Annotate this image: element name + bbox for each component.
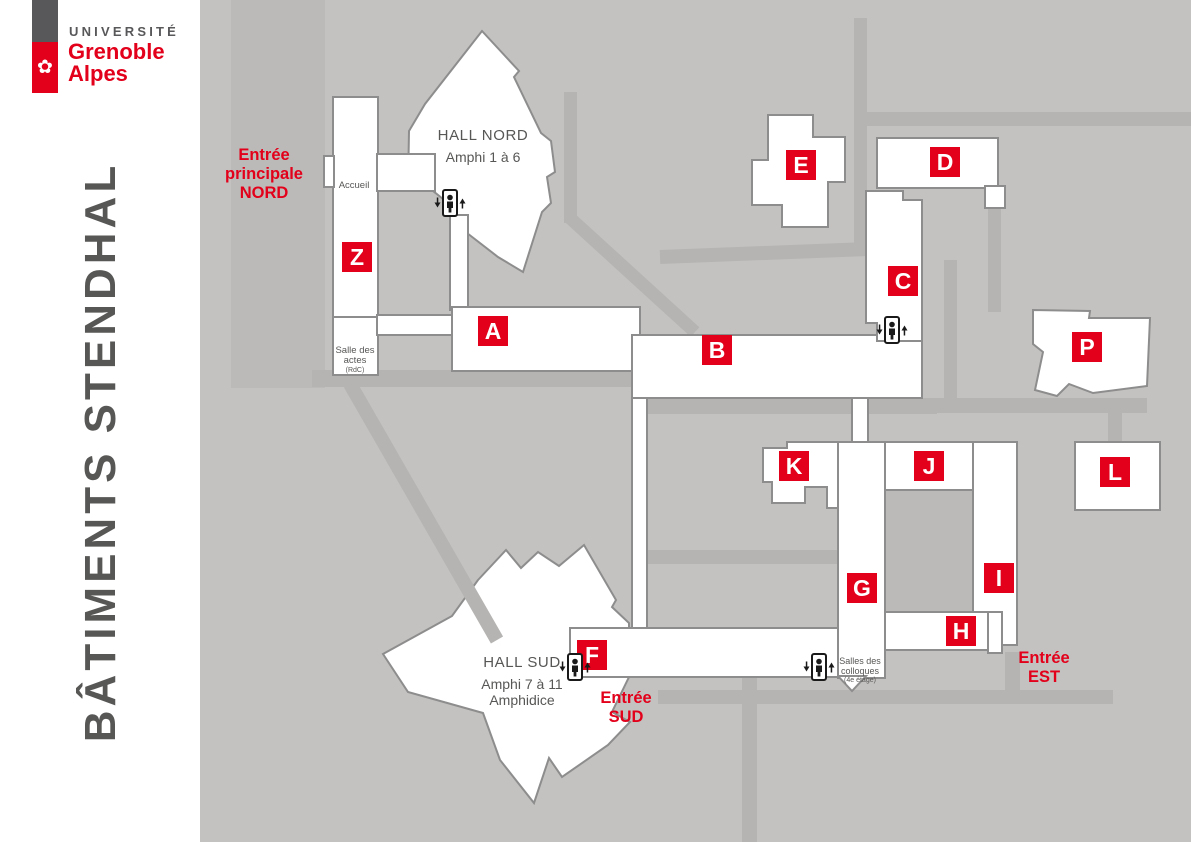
building-shape-g xyxy=(838,442,885,678)
building-badge-d: D xyxy=(930,147,960,177)
logo-name-line1: Grenoble xyxy=(68,41,165,63)
building-badge-i: I xyxy=(984,563,1014,593)
building-badge-k: K xyxy=(779,451,809,481)
building-badge-z: Z xyxy=(342,242,372,272)
elevator-icon xyxy=(557,653,593,681)
corridor-hallnord-a xyxy=(450,215,468,310)
salles-des-colloques-text: Salles des colloques xyxy=(839,656,881,677)
building-badge-j: J xyxy=(914,451,944,481)
corridor-z-a xyxy=(377,315,453,335)
building-shape-h-step xyxy=(988,612,1002,653)
accueil-label: Accueil xyxy=(336,181,372,192)
elevator-icon xyxy=(801,653,837,681)
building-shape-d-step xyxy=(985,186,1005,208)
campus-map-page: { "brand": { "university_label": "UNIVER… xyxy=(0,0,1191,842)
entrance-label-est: Entrée EST xyxy=(982,649,1106,687)
campus-map-svg xyxy=(200,0,1191,842)
building-badge-p: P xyxy=(1072,332,1102,362)
salle-des-actes-text: Salle des actes xyxy=(335,345,374,367)
salle-des-actes-note: (RdC) xyxy=(327,367,383,375)
building-badge-l: L xyxy=(1100,457,1130,487)
salles-des-colloques-label: Salles des colloques (4e étage) xyxy=(832,645,888,695)
entrance-label-nord: Entrée principale NORD xyxy=(202,146,326,203)
building-badge-b: B xyxy=(702,335,732,365)
corridor-b-f xyxy=(632,396,647,632)
building-badge-h: H xyxy=(946,616,976,646)
logo-university-label: UNIVERSITÉ xyxy=(69,24,179,39)
hall-nord-subtitle: Amphi 1 à 6 xyxy=(408,149,558,165)
building-badge-g: G xyxy=(847,573,877,603)
entrance-label-sud: Entrée SUD xyxy=(564,689,688,727)
building-shape-b xyxy=(632,335,922,398)
building-badge-c: C xyxy=(888,266,918,296)
building-shape-h xyxy=(885,612,1002,650)
building-shape-f xyxy=(570,628,838,677)
elevator-icon xyxy=(432,189,468,217)
hall-nord-label: HALL NORD xyxy=(408,127,558,144)
uga-flower-icon: ✿ xyxy=(32,42,58,93)
uga-logo: ✿ xyxy=(32,0,58,93)
page-title: BÂTIMENTS STENDHAL xyxy=(76,162,126,742)
building-shape-z xyxy=(333,97,378,375)
logo-name-line2: Alpes xyxy=(68,63,128,85)
gjih-courtyard xyxy=(886,491,972,611)
building-badge-a: A xyxy=(478,316,508,346)
logo-bar-gray xyxy=(32,0,58,42)
salle-des-actes-label: Salle des actes (RdC) xyxy=(327,335,383,385)
salles-des-colloques-note: (4e étage) xyxy=(832,677,888,685)
building-badge-e: E xyxy=(786,150,816,180)
corridor-b-g xyxy=(852,396,868,446)
elevator-icon xyxy=(874,316,910,344)
